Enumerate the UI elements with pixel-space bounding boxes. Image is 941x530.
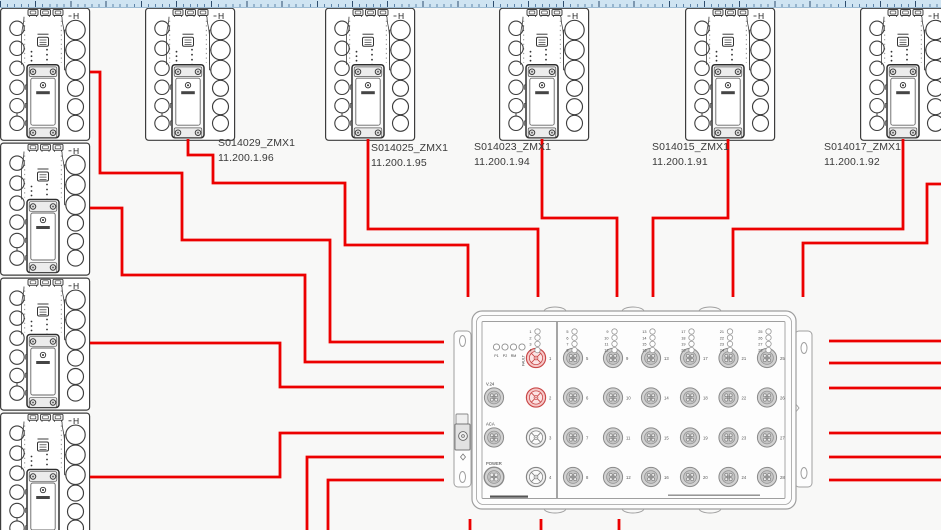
m12-port[interactable] bbox=[757, 467, 776, 486]
m12-port[interactable] bbox=[563, 388, 582, 407]
device-label: S014017_ZMX1 11.200.1.92 bbox=[824, 140, 901, 170]
svg-text:H: H bbox=[218, 11, 224, 21]
m12-port[interactable] bbox=[484, 467, 504, 487]
svg-text:6: 6 bbox=[566, 336, 568, 340]
diagram-canvas[interactable]: HHHHHHHHHP1P2RMFAULTV.24ACAPOWER11223344… bbox=[0, 0, 941, 530]
svg-text:10: 10 bbox=[604, 336, 608, 340]
device-ip: 11.200.1.91 bbox=[652, 155, 729, 170]
device-module[interactable]: H bbox=[686, 8, 775, 140]
m12-port[interactable] bbox=[484, 428, 503, 447]
device-module[interactable]: H bbox=[500, 8, 589, 140]
svg-text:28: 28 bbox=[780, 475, 785, 480]
connection-wire[interactable] bbox=[90, 208, 444, 362]
m12-port[interactable] bbox=[563, 428, 582, 447]
device-name: S014023_ZMX1 bbox=[474, 140, 551, 155]
svg-text:7: 7 bbox=[566, 343, 568, 347]
device-module[interactable]: H bbox=[861, 8, 941, 140]
device-name: S014029_ZMX1 bbox=[218, 136, 295, 151]
svg-text:22: 22 bbox=[742, 395, 747, 400]
m12-port[interactable] bbox=[757, 388, 776, 407]
svg-text:28: 28 bbox=[758, 349, 762, 353]
svg-text:10: 10 bbox=[626, 395, 631, 400]
x-port[interactable] bbox=[526, 467, 545, 486]
svg-text:27: 27 bbox=[758, 343, 762, 347]
svg-text:18: 18 bbox=[703, 395, 708, 400]
svg-text:ACA: ACA bbox=[486, 422, 495, 427]
device-name: S014015_ZMX1 bbox=[652, 140, 729, 155]
m12-port[interactable] bbox=[603, 428, 622, 447]
svg-text:21: 21 bbox=[720, 330, 724, 334]
x-port[interactable] bbox=[526, 428, 545, 447]
svg-text:19: 19 bbox=[703, 435, 708, 440]
m12-port[interactable] bbox=[719, 467, 738, 486]
m12-port[interactable] bbox=[719, 388, 738, 407]
svg-text:26: 26 bbox=[780, 395, 785, 400]
svg-text:9: 9 bbox=[606, 330, 608, 334]
m12-port[interactable] bbox=[603, 388, 622, 407]
device-module[interactable]: H bbox=[1, 8, 90, 140]
device-ip: 11.200.1.92 bbox=[824, 155, 901, 170]
connection-wire[interactable] bbox=[542, 139, 617, 297]
svg-text:H: H bbox=[758, 11, 764, 21]
svg-text:24: 24 bbox=[720, 349, 724, 353]
device-label: S014015_ZMX1 11.200.1.91 bbox=[652, 140, 729, 170]
svg-text:H: H bbox=[73, 146, 79, 156]
svg-text:16: 16 bbox=[642, 349, 646, 353]
schematic-drawing[interactable]: HHHHHHHHHP1P2RMFAULTV.24ACAPOWER11223344… bbox=[0, 0, 941, 530]
svg-text:5: 5 bbox=[566, 330, 568, 334]
svg-text:25: 25 bbox=[780, 356, 785, 361]
m12-port[interactable] bbox=[757, 428, 776, 447]
svg-text:13: 13 bbox=[642, 330, 646, 334]
m12-port[interactable] bbox=[641, 388, 660, 407]
m12-port[interactable] bbox=[680, 428, 699, 447]
svg-text:17: 17 bbox=[681, 330, 685, 334]
m12-port[interactable] bbox=[484, 388, 503, 407]
svg-text:H: H bbox=[73, 11, 79, 21]
connection-wire[interactable] bbox=[803, 184, 941, 297]
m12-port[interactable] bbox=[680, 388, 699, 407]
device-ip: 11.200.1.94 bbox=[474, 155, 551, 170]
device-module[interactable]: H bbox=[326, 8, 415, 140]
connection-wire[interactable] bbox=[328, 480, 444, 530]
svg-text:P2: P2 bbox=[503, 354, 507, 358]
svg-text:V.24: V.24 bbox=[486, 382, 495, 387]
svg-text:2: 2 bbox=[529, 336, 531, 340]
svg-text:FAULT: FAULT bbox=[522, 354, 526, 366]
svg-text:24: 24 bbox=[742, 475, 747, 480]
svg-text:20: 20 bbox=[703, 475, 708, 480]
sheet-ruler bbox=[0, 0, 941, 8]
svg-text:19: 19 bbox=[681, 343, 685, 347]
svg-text:25: 25 bbox=[758, 330, 762, 334]
svg-text:12: 12 bbox=[626, 475, 631, 480]
svg-text:H: H bbox=[572, 11, 578, 21]
svg-text:13: 13 bbox=[664, 356, 669, 361]
svg-text:16: 16 bbox=[664, 475, 669, 480]
device-label: S014029_ZMX1 11.200.1.96 bbox=[218, 136, 295, 166]
svg-text:8: 8 bbox=[566, 349, 568, 353]
connection-wire[interactable] bbox=[90, 343, 444, 387]
highlighted-port[interactable] bbox=[526, 388, 545, 407]
svg-text:14: 14 bbox=[642, 336, 646, 340]
svg-text:11: 11 bbox=[605, 343, 609, 347]
svg-text:H: H bbox=[73, 281, 79, 291]
svg-text:H: H bbox=[398, 11, 404, 21]
device-module[interactable]: H bbox=[1, 278, 90, 410]
svg-text:11: 11 bbox=[626, 435, 631, 440]
device-module[interactable]: H bbox=[1, 413, 90, 530]
svg-text:12: 12 bbox=[604, 349, 608, 353]
svg-text:21: 21 bbox=[742, 356, 747, 361]
m12-port[interactable] bbox=[563, 467, 582, 486]
m12-port[interactable] bbox=[641, 467, 660, 486]
svg-text:RM: RM bbox=[511, 354, 517, 358]
svg-text:P1: P1 bbox=[494, 354, 498, 358]
network-switch[interactable]: P1P2RMFAULTV.24ACAPOWER11223344556677889… bbox=[454, 307, 812, 513]
connection-wire[interactable] bbox=[90, 433, 444, 477]
svg-text:1: 1 bbox=[529, 330, 531, 334]
svg-text:3: 3 bbox=[529, 343, 531, 347]
svg-text:POWER: POWER bbox=[486, 461, 502, 466]
svg-text:22: 22 bbox=[720, 336, 724, 340]
device-module[interactable]: H bbox=[146, 8, 235, 140]
m12-port[interactable] bbox=[719, 428, 738, 447]
svg-text:17: 17 bbox=[703, 356, 708, 361]
svg-text:H: H bbox=[73, 416, 79, 426]
device-label: S014025_ZMX1 11.200.1.95 bbox=[371, 141, 448, 171]
svg-text:14: 14 bbox=[664, 395, 669, 400]
m12-port[interactable] bbox=[680, 467, 699, 486]
svg-text:15: 15 bbox=[664, 435, 669, 440]
device-label: S014023_ZMX1 11.200.1.94 bbox=[474, 140, 551, 170]
m12-port[interactable] bbox=[641, 428, 660, 447]
device-ip: 11.200.1.95 bbox=[371, 156, 448, 171]
svg-text:27: 27 bbox=[780, 435, 785, 440]
m12-port[interactable] bbox=[603, 467, 622, 486]
svg-text:26: 26 bbox=[758, 336, 762, 340]
device-name: S014025_ZMX1 bbox=[371, 141, 448, 156]
svg-text:23: 23 bbox=[742, 435, 747, 440]
svg-text:H: H bbox=[933, 11, 939, 21]
svg-text:4: 4 bbox=[529, 349, 531, 353]
svg-text:15: 15 bbox=[642, 343, 646, 347]
device-ip: 11.200.1.96 bbox=[218, 151, 295, 166]
svg-text:23: 23 bbox=[720, 343, 724, 347]
device-module[interactable]: H bbox=[1, 143, 90, 275]
device-name: S014017_ZMX1 bbox=[824, 140, 901, 155]
svg-text:18: 18 bbox=[681, 336, 685, 340]
svg-text:20: 20 bbox=[681, 349, 685, 353]
